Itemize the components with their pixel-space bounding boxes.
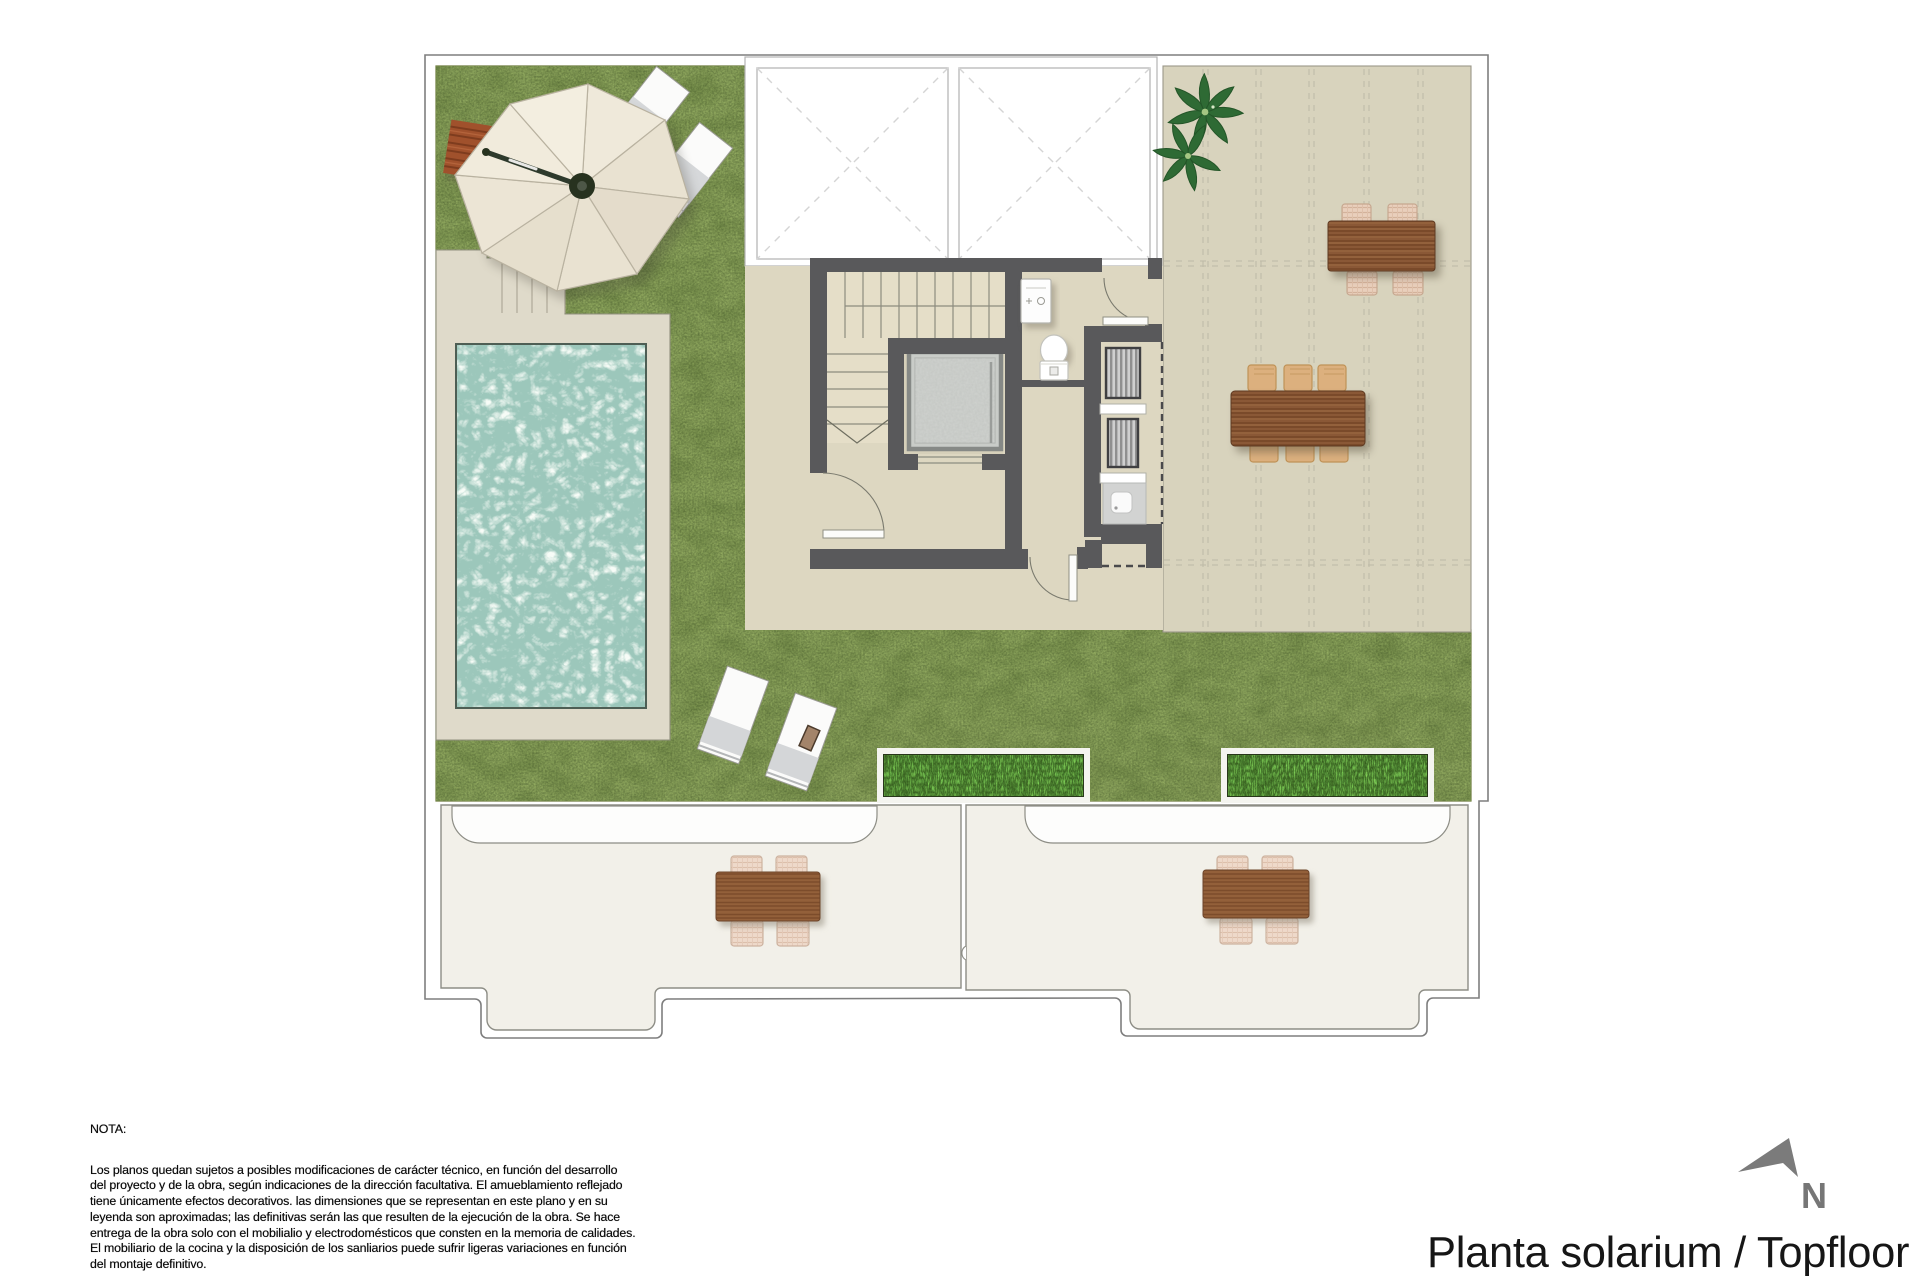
svg-text:N: N — [1801, 1175, 1827, 1216]
